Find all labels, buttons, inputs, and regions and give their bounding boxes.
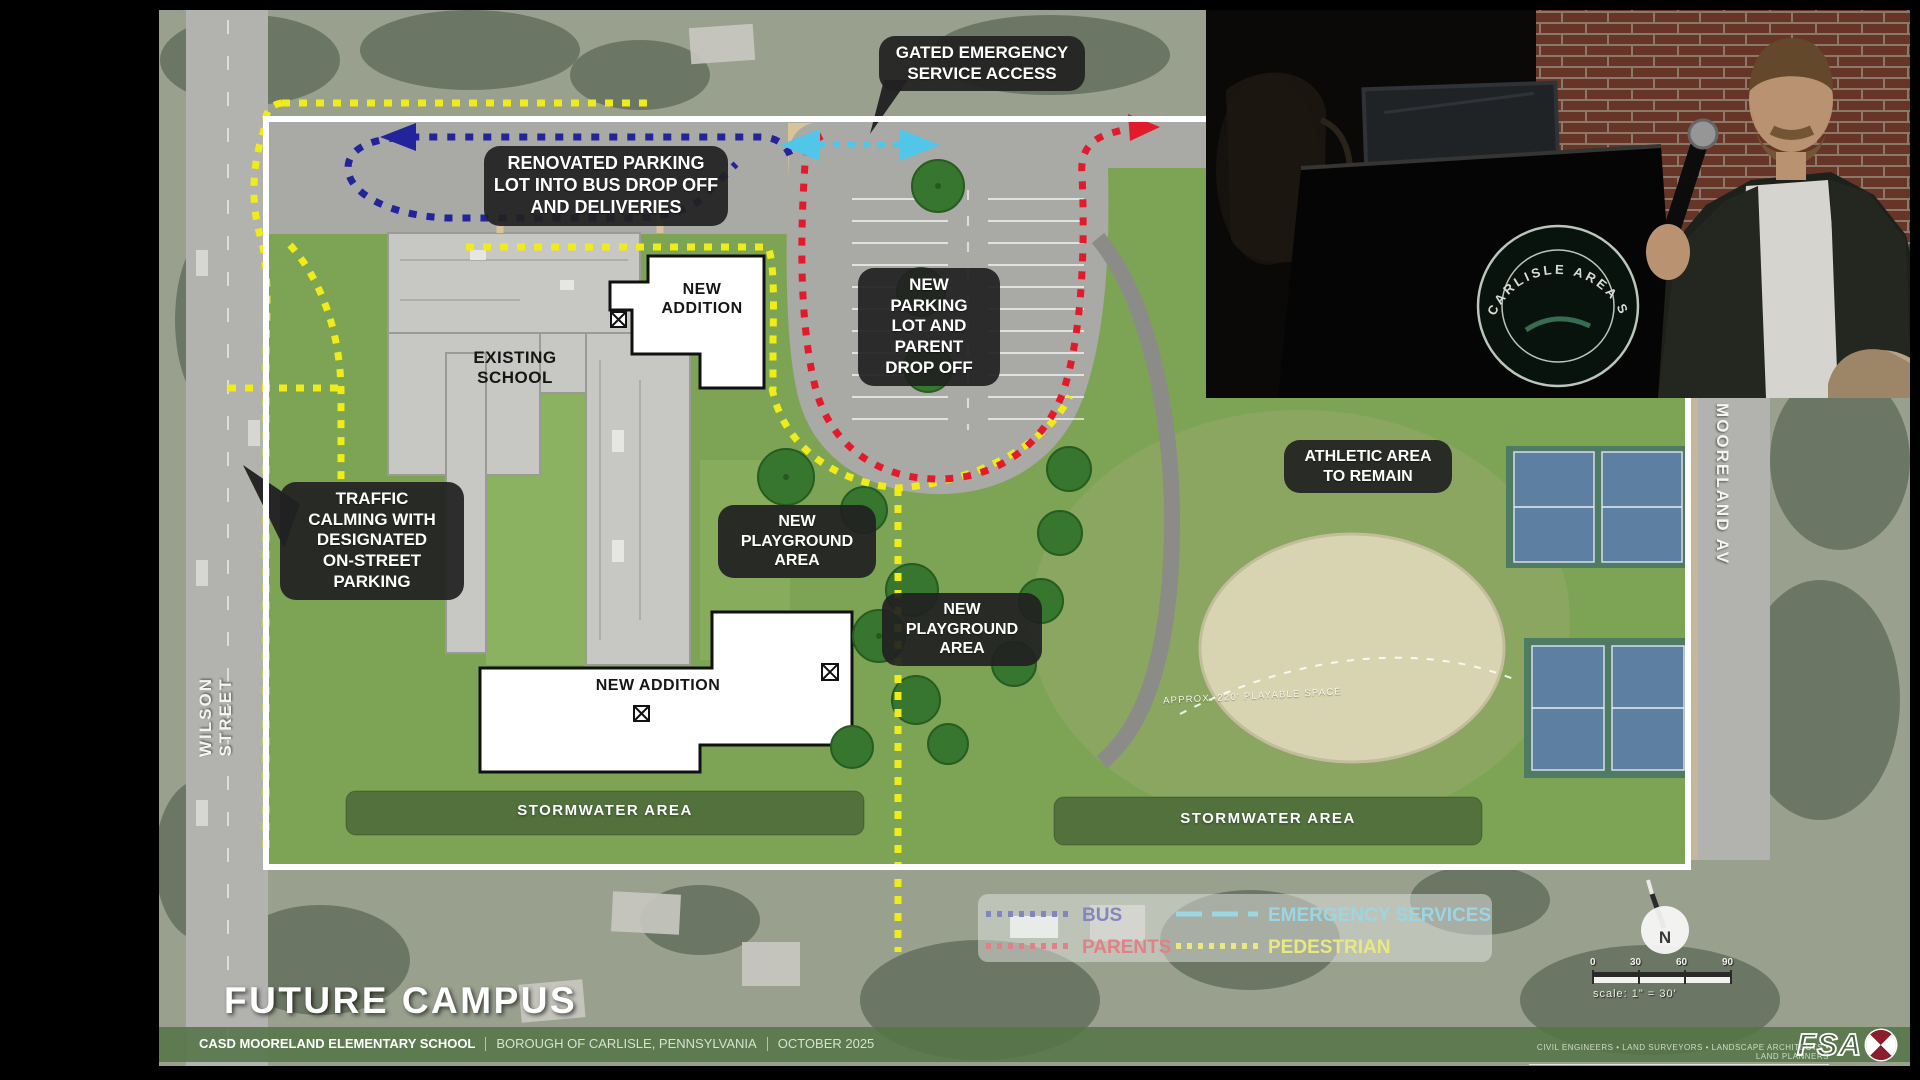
label-existing-school: EXISTING SCHOOL <box>450 348 580 389</box>
footer-bar: CASD MOORELAND ELEMENTARY SCHOOL BOROUGH… <box>159 1027 1910 1062</box>
scale-tick-90: 90 <box>1722 957 1733 968</box>
callout-athletic-area: ATHLETIC AREA TO REMAIN <box>1284 440 1452 493</box>
street-label-wilson: WILSON STREET <box>196 637 236 797</box>
label-new-addition-south: NEW ADDITION <box>578 676 738 695</box>
scale-tick-60: 60 <box>1676 957 1687 968</box>
footer-project-info: CASD MOORELAND ELEMENTARY SCHOOL BOROUGH… <box>199 1036 874 1051</box>
north-arrow: N <box>1641 906 1689 954</box>
letterbox-bottom <box>0 1066 1920 1080</box>
scale-tick-30: 30 <box>1630 957 1641 968</box>
label-new-addition-north: NEW ADDITION <box>648 280 756 318</box>
legend <box>978 894 1492 962</box>
footer-date: OCTOBER 2025 <box>778 1036 875 1051</box>
callout-new-parking: NEW PARKING LOT AND PARENT DROP OFF <box>858 268 1000 386</box>
letterbox-top <box>0 0 1920 10</box>
footer-divider <box>485 1037 486 1051</box>
webcam-pip: CARLISLE AREA SCH <box>1206 0 1912 398</box>
label-stormwater-right: STORMWATER AREA <box>1054 810 1482 827</box>
footer-school-name: CASD MOORELAND ELEMENTARY SCHOOL <box>199 1036 475 1051</box>
page-title: FUTURE CAMPUS <box>224 980 577 1022</box>
tennis-courts-north <box>1506 446 1688 568</box>
letterbox-right <box>1910 0 1920 1080</box>
north-label: N <box>1659 928 1671 947</box>
video-frame: BUS PARENTS EMERGENCY SERVICES PEDESTRIA… <box>0 0 1920 1080</box>
tennis-courts-south <box>1524 638 1688 778</box>
callout-playground-2: NEW PLAYGROUND AREA <box>882 593 1042 666</box>
scale-tick-0: 0 <box>1590 957 1596 968</box>
scale-bar <box>1593 970 1731 984</box>
callout-renovated-parking: RENOVATED PARKING LOT INTO BUS DROP OFF … <box>484 146 728 226</box>
callout-playground-1: NEW PLAYGROUND AREA <box>718 505 876 578</box>
callout-traffic-calming: TRAFFIC CALMING WITH DESIGNATED ON-STREE… <box>280 482 464 600</box>
webcam-scene: CARLISLE AREA SCH <box>1206 0 1912 398</box>
callout-gated-emergency: GATED EMERGENCY SERVICE ACCESS <box>879 36 1085 91</box>
street-label-mooreland: MOORELAND AV <box>1712 389 1732 579</box>
footer-divider <box>767 1037 768 1051</box>
firm-tagline: CIVIL ENGINEERS • LAND SURVEYORS • LANDS… <box>1529 1043 1829 1065</box>
firm-logo: FSA <box>1797 1027 1896 1062</box>
scale-caption: scale: 1" = 30' <box>1593 988 1677 1000</box>
firm-logo-text: FSA <box>1797 1027 1862 1063</box>
firm-logo-mark-icon <box>1866 1030 1896 1060</box>
footer-location: BOROUGH OF CARLISLE, PENNSYLVANIA <box>496 1036 756 1051</box>
label-stormwater-left: STORMWATER AREA <box>346 802 864 819</box>
letterbox-left <box>0 0 159 1080</box>
